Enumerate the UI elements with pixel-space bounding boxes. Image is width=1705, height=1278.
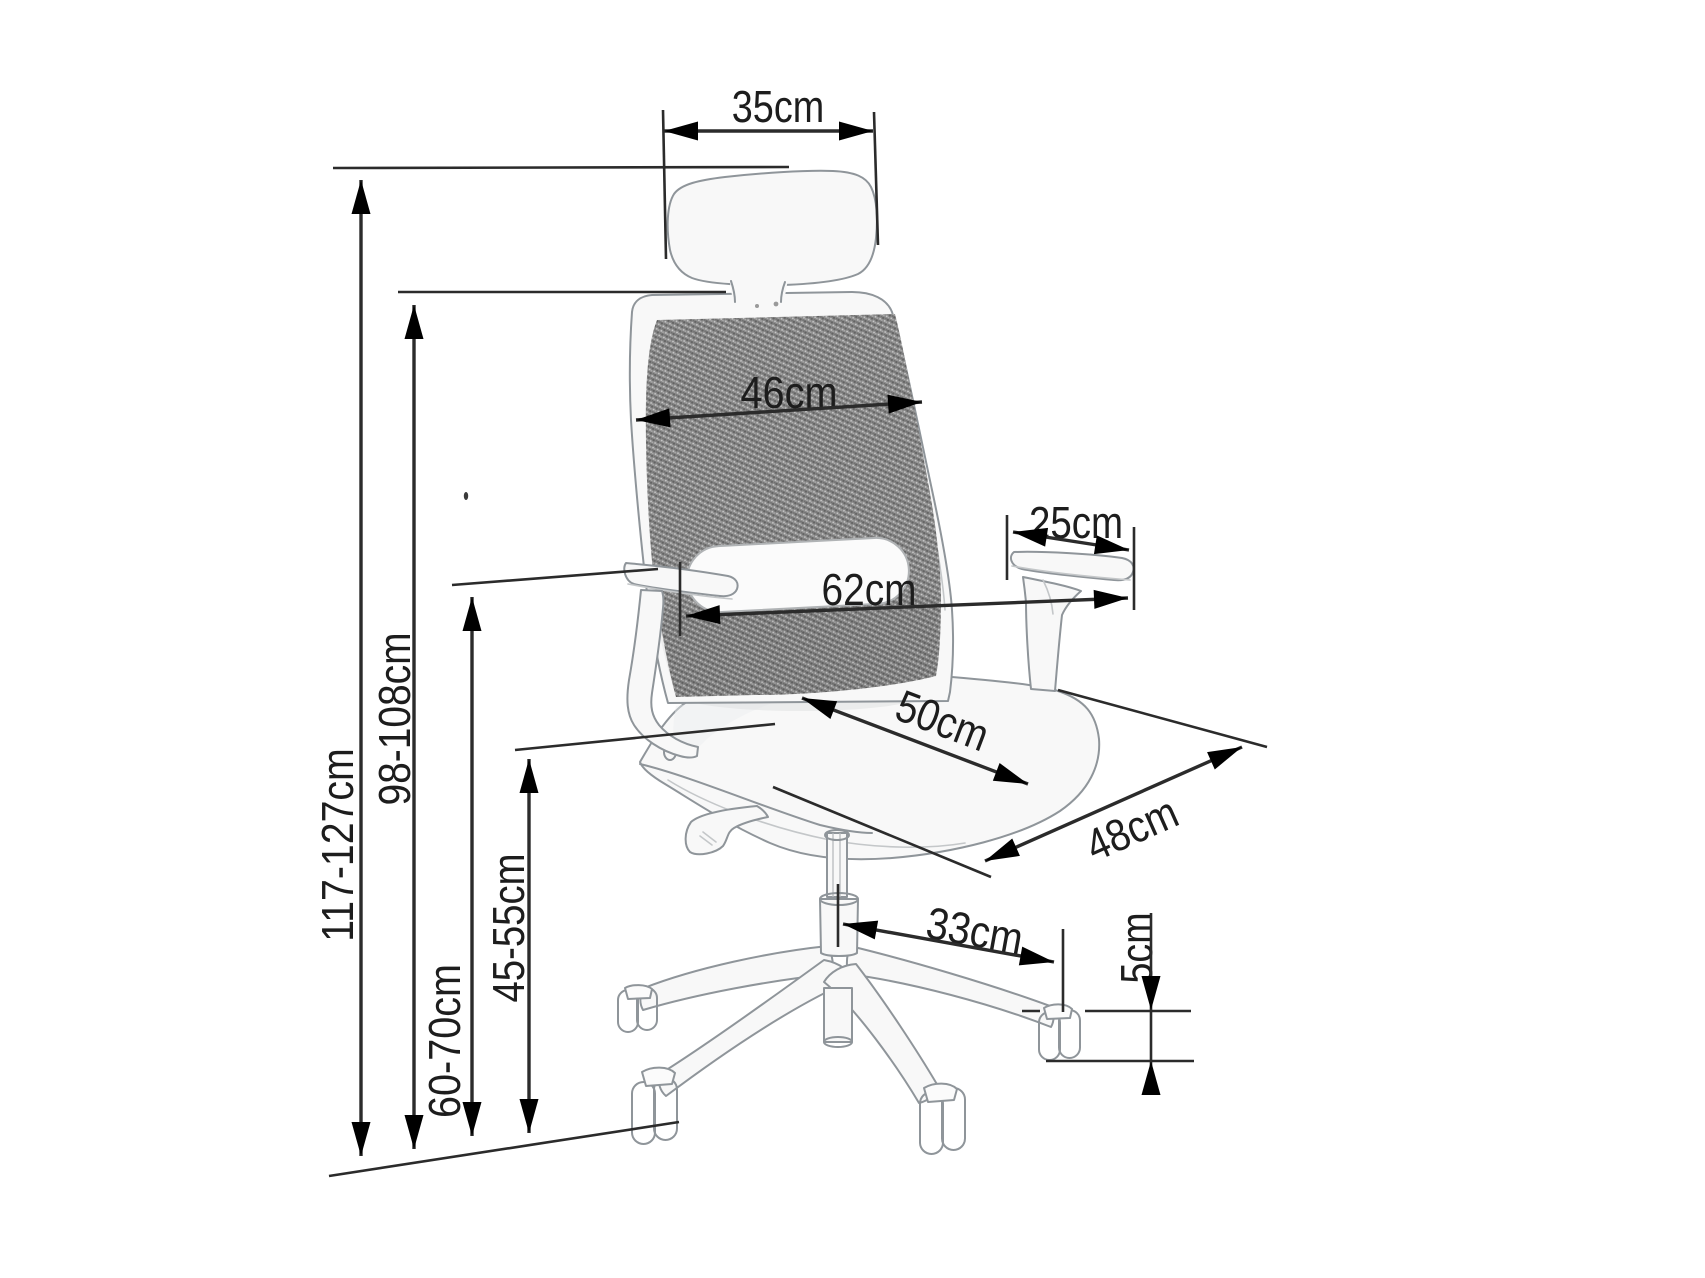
svg-text:45-55cm: 45-55cm (483, 854, 534, 1003)
svg-text:35cm: 35cm (732, 81, 824, 132)
svg-text:5cm: 5cm (1111, 913, 1162, 984)
svg-text:117-127cm: 117-127cm (312, 748, 363, 941)
svg-text:60-70cm: 60-70cm (419, 964, 470, 1118)
